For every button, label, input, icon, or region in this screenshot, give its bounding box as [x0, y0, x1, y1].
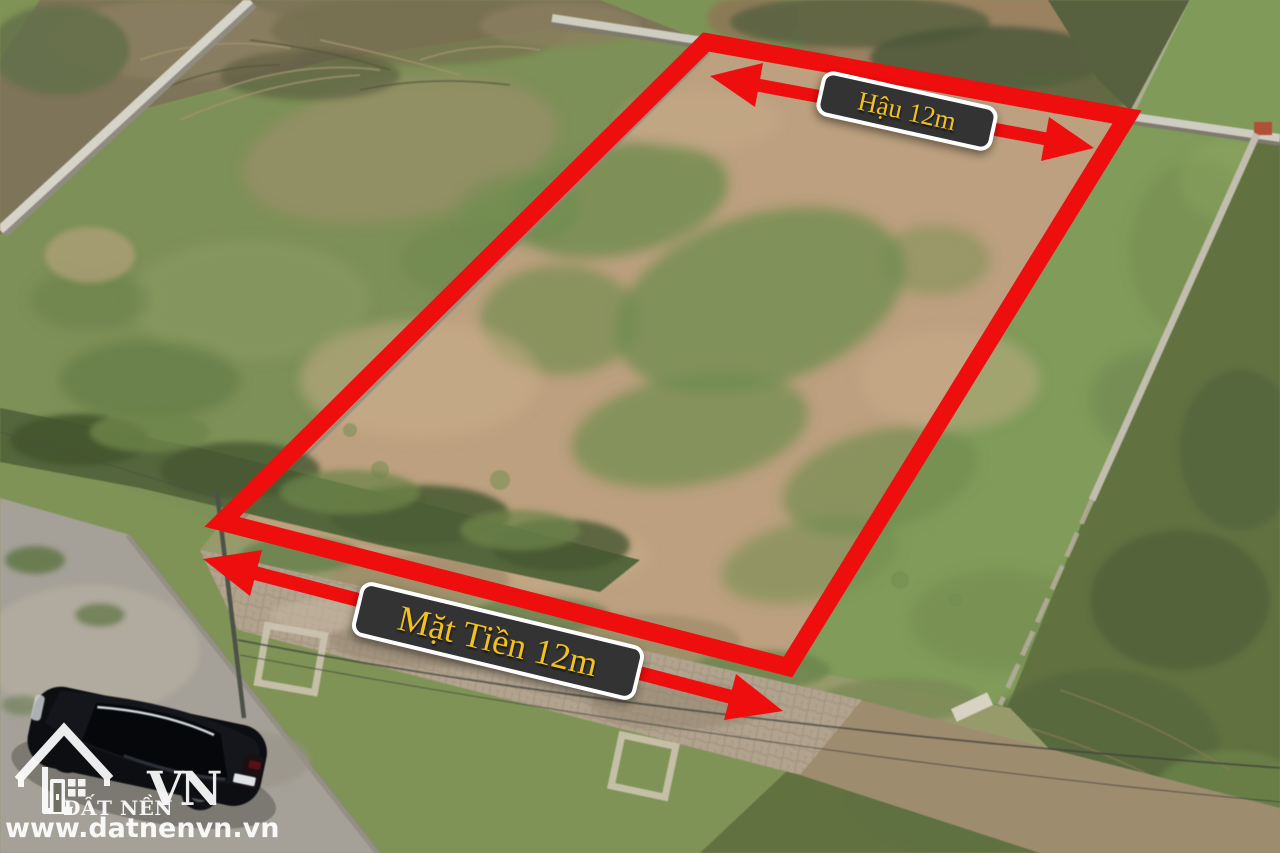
- website-text: www.datnenvn.vn: [5, 815, 279, 842]
- watermark-logo: ĐẤT NỀN VN www.datnenvn.vn: [0, 690, 250, 853]
- house-window: [68, 779, 86, 797]
- aerial-land-plot-photo: .: [0, 0, 1280, 853]
- brand-suffix-text: VN: [147, 766, 218, 813]
